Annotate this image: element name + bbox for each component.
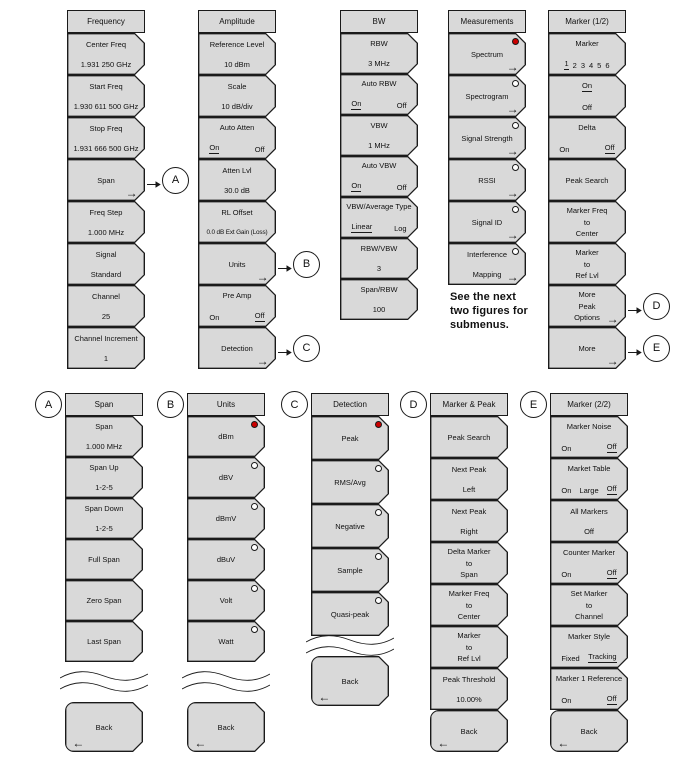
button-face: Spectrum→	[449, 34, 524, 73]
button-face: Last Span	[66, 622, 141, 660]
detection-button-negative[interactable]: Negative	[311, 504, 389, 548]
button-label-row: 1-2-5	[66, 483, 141, 492]
button-label-row: Zero Span	[66, 596, 141, 605]
label-segment: 3	[581, 61, 585, 70]
label-segment: Scale	[228, 82, 247, 91]
frequency-button-freq-step-1-000-mhz[interactable]: Freq Step1.000 MHz	[67, 201, 145, 243]
amplitude-button-detection[interactable]: Detection→	[198, 327, 276, 369]
button-label-row: to	[431, 643, 506, 652]
radio-unselected-icon	[251, 585, 258, 592]
button-label-row: Marker	[549, 39, 624, 48]
label-segment: Ref Lvl	[457, 654, 480, 663]
marker_peak-button-peak-threshold-10-00[interactable]: Peak Threshold10.00%	[430, 668, 508, 710]
bw-button-auto-vbw-on-off[interactable]: Auto VBWOnOff	[340, 156, 418, 197]
label-segment: Back	[96, 723, 113, 732]
button-label-row: Off	[551, 527, 626, 536]
label-segment: Atten Lvl	[222, 166, 251, 175]
submenu-note-line: See the next	[450, 290, 528, 304]
bw-button-rbw-3-mhz[interactable]: RBW3 MHz	[340, 33, 418, 74]
label-segment: Marker	[575, 248, 598, 257]
button-face: VBW/Average TypeLinearLog	[341, 198, 416, 236]
marker2-button-counter-marker-on-off[interactable]: Counter MarkerOnOff	[550, 542, 628, 584]
button-face: Full Span	[66, 540, 141, 578]
button-face: Scale10 dB/div	[199, 76, 274, 115]
back-arrow-icon: ←	[557, 737, 569, 749]
button-label-row: Freq Step	[68, 208, 143, 217]
connector-arrow-B	[278, 260, 292, 278]
label-circle-B: B	[157, 391, 184, 418]
frequency-menu: FrequencyCenter Freq1.931 250 GHzStart F…	[67, 10, 145, 369]
button-label-rows: Detection	[199, 344, 274, 353]
button-face: Signal Strength→	[449, 118, 524, 157]
button-label-row: dBm	[188, 432, 263, 441]
span-button-last-span[interactable]: Last Span	[65, 621, 143, 662]
button-face: Delta MarkertoSpan	[431, 543, 506, 582]
button-label-row: Back	[66, 723, 141, 732]
button-label-row: Signal	[68, 250, 143, 259]
label-segment: Units	[228, 260, 245, 269]
label-segment: Signal ID	[472, 218, 502, 227]
measurements-menu: MeasurementsSpectrum→Spectrogram→Signal …	[448, 10, 526, 285]
button-label-rows: SignalStandard	[68, 250, 143, 279]
button-label-rows: dBmV	[188, 514, 263, 523]
radio-unselected-icon	[512, 206, 519, 213]
bw-button-vbw-1-mhz[interactable]: VBW1 MHz	[340, 115, 418, 156]
span-button-span-down-1-2-5[interactable]: Span Down1-2-5	[65, 498, 143, 539]
label-segment: 30.0 dB	[224, 186, 250, 195]
button-label-rows: OnOff	[549, 81, 624, 112]
connector-circle-E: E	[643, 335, 670, 362]
button-label-row: Channel Increment	[68, 334, 143, 343]
label-segment: 2	[573, 61, 577, 70]
button-label-row: 1 MHz	[341, 141, 416, 150]
label-segment: Span Up	[89, 463, 118, 472]
submenu-arrow-icon: →	[257, 271, 269, 283]
button-face: Channel Increment1	[68, 328, 143, 367]
button-label-row: RBW/VBW	[341, 244, 416, 253]
button-label-rows: More	[549, 344, 624, 353]
label-segment: Ref Lvl	[575, 271, 598, 280]
amplitude-button-rl-offset-0-0-db-ext-gain-loss[interactable]: RL Offset0.0 dB Ext Gain (Loss)	[198, 201, 276, 243]
label-segment: 25	[102, 312, 110, 321]
softkey-menu-map: FrequencyCenter Freq1.931 250 GHzStart F…	[0, 0, 689, 767]
label-segment: 1	[564, 59, 568, 70]
units-button-dbv[interactable]: dBV	[187, 457, 265, 498]
button-face: Back←	[431, 711, 506, 750]
label-segment: Options	[574, 313, 600, 322]
frequency-button-channel-25[interactable]: Channel25	[67, 285, 145, 327]
button-label-row: Channel	[551, 612, 626, 621]
label-segment: Marker Style	[568, 632, 610, 641]
button-face: More→	[549, 328, 624, 367]
button-label-row: OnOff	[551, 568, 626, 579]
label-circle-C: C	[281, 391, 308, 418]
button-label-rows: Next PeakLeft	[431, 465, 506, 494]
span-button-span-1-000-mhz[interactable]: Span1.000 MHz	[65, 416, 143, 457]
bw-button-rbw-vbw-3[interactable]: RBW/VBW3	[340, 238, 418, 279]
amplitude-button-pre-amp-on-off[interactable]: Pre AmpOnOff	[198, 285, 276, 327]
button-label-row: Last Span	[66, 637, 141, 646]
back-arrow-icon: ←	[194, 737, 206, 749]
detection-button-back[interactable]: Back←	[311, 656, 389, 706]
button-label-rows: Peak Threshold10.00%	[431, 675, 506, 704]
label-circle-E: E	[520, 391, 547, 418]
button-face: Stop Freq1.931 666 500 GHz	[68, 118, 143, 157]
button-label-row: Negative	[312, 522, 387, 531]
label-segment: Market Table	[568, 464, 611, 473]
label-segment: 100	[373, 305, 386, 314]
amplitude-menu: AmplitudeReference Level10 dBmScale10 dB…	[198, 10, 276, 369]
detection-button-sample[interactable]: Sample	[311, 548, 389, 592]
detection-menu: DetectionPeakRMS/AvgNegativeSampleQuasi-…	[311, 393, 389, 706]
label-segment: Start Freq	[89, 82, 122, 91]
label-segment: VBW	[370, 121, 387, 130]
amplitude-button-scale-10-db-div[interactable]: Scale10 dB/div	[198, 75, 276, 117]
button-label-rows: Next PeakRight	[431, 507, 506, 536]
button-label-rows: VBW/Average TypeLinearLog	[341, 202, 416, 233]
button-label-rows: Peak	[312, 434, 387, 443]
label-segment: 1	[104, 354, 108, 363]
frequency-button-span[interactable]: Span→	[67, 159, 145, 201]
marker1-button-delta-on-off[interactable]: DeltaOnOff	[548, 117, 626, 159]
button-label-row: Marker Freq	[431, 589, 506, 598]
submenu-arrow-icon: →	[607, 355, 619, 367]
label-segment: Back	[342, 677, 359, 686]
button-label-row: 1.931 666 500 GHz	[68, 144, 143, 153]
span-button-zero-span[interactable]: Zero Span	[65, 580, 143, 621]
label-segment: All Markers	[570, 507, 608, 516]
marker_peak-button-marker-freq-to-center[interactable]: Marker FreqtoCenter	[430, 584, 508, 626]
button-label-rows: Marker 1 ReferenceOnOff	[551, 674, 626, 705]
label-segment: Quasi-peak	[331, 610, 369, 619]
button-label-row: Span	[431, 570, 506, 579]
button-label-rows: DeltaOnOff	[549, 123, 624, 154]
label-segment: Standard	[91, 270, 121, 279]
amplitude-button-reference-level-10-dbm[interactable]: Reference Level10 dBm	[198, 33, 276, 75]
frequency-button-center-freq-1-931-250-ghz[interactable]: Center Freq1.931 250 GHz	[67, 33, 145, 75]
radio-unselected-icon	[375, 597, 382, 604]
marker2-menu-title: Marker (2/2)	[550, 393, 628, 416]
label-segment: Back	[581, 727, 598, 736]
marker1-button-marker-1-2-3-4-5-6[interactable]: Marker123456	[548, 33, 626, 75]
button-label-row: Back	[312, 677, 387, 686]
bw-button-auto-rbw-on-off[interactable]: Auto RBWOnOff	[340, 74, 418, 115]
button-label-row: Watt	[188, 637, 263, 646]
button-label-rows: Scale10 dB/div	[199, 82, 274, 111]
bw-button-span-rbw-100[interactable]: Span/RBW100	[340, 279, 418, 320]
back-arrow-icon: ←	[72, 737, 84, 749]
button-label-rows: dBuV	[188, 555, 263, 564]
label-segment: Right	[460, 527, 478, 536]
marker_peak-button-next-peak-left[interactable]: Next PeakLeft	[430, 458, 508, 500]
amplitude-button-atten-lvl-30-0-db[interactable]: Atten Lvl30.0 dB	[198, 159, 276, 201]
marker1-button-marker-to-ref-lvl[interactable]: MarkertoRef Lvl	[548, 243, 626, 285]
button-face: Center Freq1.931 250 GHz	[68, 34, 143, 73]
connector-arrow-D	[628, 302, 642, 320]
button-label-row: Spectrogram	[449, 92, 524, 101]
marker_peak-button-next-peak-right[interactable]: Next PeakRight	[430, 500, 508, 542]
units-button-volt[interactable]: Volt	[187, 580, 265, 621]
back-arrow-icon: ←	[318, 691, 330, 703]
button-label-row: 1.000 MHz	[66, 442, 141, 451]
button-face: dBV	[188, 458, 263, 496]
marker2-button-back[interactable]: Back←	[550, 710, 628, 752]
frequency-button-stop-freq-1-931-666-500-ghz[interactable]: Stop Freq1.931 666 500 GHz	[67, 117, 145, 159]
marker1-button-more-peak-options[interactable]: MorePeakOptions→	[548, 285, 626, 327]
button-label-rows: Zero Span	[66, 596, 141, 605]
button-label-row: Auto RBW	[341, 79, 416, 88]
amplitude-menu-title: Amplitude	[198, 10, 276, 33]
button-label-row: dBmV	[188, 514, 263, 523]
button-face: Counter MarkerOnOff	[551, 543, 626, 582]
label-segment: Zero Span	[86, 596, 121, 605]
span-button-span-up-1-2-5[interactable]: Span Up1-2-5	[65, 457, 143, 498]
button-face: Span→	[68, 160, 143, 199]
label-segment: Reference Level	[210, 40, 265, 49]
button-face: Span Down1-2-5	[66, 499, 141, 537]
frequency-button-channel-increment-1[interactable]: Channel Increment1	[67, 327, 145, 369]
measurements-button-spectrogram[interactable]: Spectrogram→	[448, 75, 526, 117]
label-segment: to	[584, 260, 590, 269]
button-face: Span/RBW100	[341, 280, 416, 318]
marker2-button-set-marker-to-channel[interactable]: Set MarkertoChannel	[550, 584, 628, 626]
label-segment: Spectrum	[471, 50, 503, 59]
submenu-arrow-icon: →	[507, 187, 519, 199]
button-face: Watt	[188, 622, 263, 660]
button-label-row: Pre Amp	[199, 291, 274, 300]
label-segment: Span	[97, 176, 115, 185]
label-segment: 1.930 611 500 GHz	[74, 102, 139, 111]
button-label-rows: MarkertoRef Lvl	[549, 248, 624, 280]
measurements-button-rssi[interactable]: RSSI→	[448, 159, 526, 201]
label-segment: On	[351, 181, 361, 192]
button-label-rows: Auto AttenOnOff	[199, 123, 274, 154]
label-segment: 1 MHz	[368, 141, 390, 150]
button-face: Back←	[66, 703, 141, 750]
units-button-dbuv[interactable]: dBuV	[187, 539, 265, 580]
button-label-rows: Span Up1-2-5	[66, 463, 141, 492]
button-label-rows: Spectrogram	[449, 92, 524, 101]
label-segment: RBW	[370, 39, 388, 48]
label-segment: RBW/VBW	[361, 244, 398, 253]
button-face: MorePeakOptions→	[549, 286, 624, 325]
frequency-button-signal-standard[interactable]: SignalStandard	[67, 243, 145, 285]
submenu-arrow-icon: →	[607, 313, 619, 325]
button-face: Marker StyleFixedTracking	[551, 627, 626, 666]
units-button-back[interactable]: Back←	[187, 702, 265, 752]
connector-circle-B: B	[293, 251, 320, 278]
bw-menu: BWRBW3 MHzAuto RBWOnOffVBW1 MHzAuto VBWO…	[340, 10, 418, 320]
button-label-row: 10 dB/div	[199, 102, 274, 111]
label-segment: Full Span	[88, 555, 120, 564]
label-segment: Sample	[337, 566, 362, 575]
units-button-dbm[interactable]: dBm	[187, 416, 265, 457]
measurements-button-signal-id[interactable]: Signal ID→	[448, 201, 526, 243]
button-label-row: Back	[431, 727, 506, 736]
label-segment: 1.931 666 500 GHz	[73, 144, 138, 153]
button-face: Sample	[312, 549, 387, 590]
button-label-row: VBW/Average Type	[341, 202, 416, 211]
label-segment: Back	[218, 723, 235, 732]
button-label-row: 123456	[549, 59, 624, 70]
button-label-row: RL Offset	[199, 208, 274, 217]
button-face: SignalStandard	[68, 244, 143, 283]
detection-button-rms-avg[interactable]: RMS/Avg	[311, 460, 389, 504]
button-face: Atten Lvl30.0 dB	[199, 160, 274, 199]
marker2-button-marker-1-reference-on-off[interactable]: Marker 1 ReferenceOnOff	[550, 668, 628, 710]
label-segment: 1.000 MHz	[86, 442, 122, 451]
button-label-row: Auto Atten	[199, 123, 274, 132]
button-label-row: Center	[431, 612, 506, 621]
span-menu-title: Span	[65, 393, 143, 416]
button-label-row: Next Peak	[431, 465, 506, 474]
button-label-row: Peak Threshold	[431, 675, 506, 684]
label-segment: to	[466, 559, 472, 568]
marker1-button-peak-search[interactable]: Peak Search	[548, 159, 626, 201]
button-label-row: More	[549, 344, 624, 353]
button-label-row: Scale	[199, 82, 274, 91]
label-segment: Marker Freq	[449, 589, 490, 598]
button-label-rows: Marker NoiseOnOff	[551, 422, 626, 453]
marker_peak-button-peak-search[interactable]: Peak Search	[430, 416, 508, 458]
marker1-menu-title: Marker (1/2)	[548, 10, 626, 33]
label-segment: On	[561, 696, 571, 705]
marker1-menu: Marker (1/2)Marker123456OnOffDeltaOnOffP…	[548, 10, 626, 369]
button-label-row: 30.0 dB	[199, 186, 274, 195]
button-label-rows: Quasi-peak	[312, 610, 387, 619]
button-label-row: VBW	[341, 121, 416, 130]
button-label-row: to	[549, 218, 624, 227]
measurements-button-signal-strength[interactable]: Signal Strength→	[448, 117, 526, 159]
marker_peak-button-back[interactable]: Back←	[430, 710, 508, 752]
label-segment: Spectrogram	[466, 92, 509, 101]
label-segment: Pre Amp	[223, 291, 252, 300]
label-segment: Signal Strength	[461, 134, 512, 143]
button-face: Next PeakRight	[431, 501, 506, 540]
label-segment: On	[559, 145, 569, 154]
amplitude-button-auto-atten-on-off[interactable]: Auto AttenOnOff	[198, 117, 276, 159]
label-segment: Fixed	[561, 654, 579, 663]
submenu-arrow-icon: →	[507, 271, 519, 283]
label-segment: 1-2-5	[95, 524, 113, 533]
button-label-row: Atten Lvl	[199, 166, 274, 175]
button-label-rows: Counter MarkerOnOff	[551, 548, 626, 579]
label-segment: Left	[463, 485, 476, 494]
button-label-rows: Center Freq1.931 250 GHz	[68, 40, 143, 69]
label-segment: Marker	[575, 39, 598, 48]
button-label-row: Marker Freq	[549, 206, 624, 215]
button-label-row: LinearLog	[341, 222, 416, 233]
marker_peak-button-delta-marker-to-span[interactable]: Delta MarkertoSpan	[430, 542, 508, 584]
button-label-row: Reference Level	[199, 40, 274, 49]
label-segment: 1.000 MHz	[88, 228, 124, 237]
span-button-back[interactable]: Back←	[65, 702, 143, 752]
marker1-button-marker-freq-to-center[interactable]: Marker FreqtoCenter	[548, 201, 626, 243]
label-segment: Large	[579, 486, 598, 495]
menu-break-wave	[182, 668, 270, 701]
marker2-button-all-markers-off[interactable]: All MarkersOff	[550, 500, 628, 542]
label-circle-D: D	[400, 391, 427, 418]
label-segment: Negative	[335, 522, 365, 531]
button-label-row: Spectrum	[449, 50, 524, 59]
submenu-arrow-icon: →	[507, 103, 519, 115]
units-button-watt[interactable]: Watt	[187, 621, 265, 662]
button-label-rows: Peak Search	[549, 176, 624, 185]
marker2-button-marker-noise-on-off[interactable]: Marker NoiseOnOff	[550, 416, 628, 458]
marker2-button-marker-style-fixed-tracking[interactable]: Marker StyleFixedTracking	[550, 626, 628, 668]
frequency-button-start-freq-1-930-611-500-ghz[interactable]: Start Freq1.930 611 500 GHz	[67, 75, 145, 117]
marker2-button-market-table-on-large-off[interactable]: Market TableOnLargeOff	[550, 458, 628, 500]
units-button-dbmv[interactable]: dBmV	[187, 498, 265, 539]
button-label-rows: Watt	[188, 637, 263, 646]
button-label-row: All Markers	[551, 507, 626, 516]
label-segment: Off	[607, 442, 617, 453]
marker1-button-more[interactable]: More→	[548, 327, 626, 369]
detection-button-peak[interactable]: Peak	[311, 416, 389, 460]
button-label-rows: Back	[66, 723, 141, 732]
span-button-full-span[interactable]: Full Span	[65, 539, 143, 580]
label-segment: Back	[461, 727, 478, 736]
button-label-row: 3	[341, 264, 416, 273]
button-label-row: OnOff	[199, 311, 274, 322]
button-label-row: Signal Strength	[449, 134, 524, 143]
button-label-rows: Marker FreqtoCenter	[431, 589, 506, 621]
button-label-row: Span	[68, 176, 143, 185]
button-label-row: Center	[549, 229, 624, 238]
submenu-note-line: two figures for	[450, 304, 528, 318]
connector-arrow-A	[147, 176, 161, 194]
button-face: dBmV	[188, 499, 263, 537]
connector-arrow-C	[278, 344, 292, 362]
detection-button-quasi-peak[interactable]: Quasi-peak	[311, 592, 389, 636]
submenu-arrow-icon: →	[257, 355, 269, 367]
button-label-rows: dBV	[188, 473, 263, 482]
label-segment: dBmV	[216, 514, 236, 523]
measurements-menu-title: Measurements	[448, 10, 526, 33]
button-face: RSSI→	[449, 160, 524, 199]
units-menu: UnitsdBmdBVdBmVdBuVVoltWattBack←	[187, 393, 265, 752]
label-segment: Tracking	[588, 652, 616, 663]
marker_peak-button-marker-to-ref-lvl[interactable]: MarkertoRef Lvl	[430, 626, 508, 668]
button-face: RMS/Avg	[312, 461, 387, 502]
label-segment: RL Offset	[221, 208, 252, 217]
label-segment: Span Down	[85, 504, 124, 513]
radio-unselected-icon	[512, 248, 519, 255]
button-label-row: RMS/Avg	[312, 478, 387, 487]
label-segment: Auto Atten	[220, 123, 255, 132]
label-segment: dBV	[219, 473, 233, 482]
measurements-button-spectrum[interactable]: Spectrum→	[448, 33, 526, 75]
amplitude-button-units[interactable]: Units→	[198, 243, 276, 285]
button-label-row: Marker	[549, 248, 624, 257]
button-label-row: dBuV	[188, 555, 263, 564]
label-segment: to	[466, 601, 472, 610]
button-label-row: Sample	[312, 566, 387, 575]
label-segment: Delta	[578, 123, 596, 132]
button-label-row: Center Freq	[68, 40, 143, 49]
button-label-row: 3 MHz	[341, 59, 416, 68]
button-label-row: Back	[551, 727, 626, 736]
bw-button-vbw-average-type-linear-log[interactable]: VBW/Average TypeLinearLog	[340, 197, 418, 238]
marker1-button-on-off[interactable]: OnOff	[548, 75, 626, 117]
button-face: Channel25	[68, 286, 143, 325]
measurements-button-interference-mapping[interactable]: InterferenceMapping→	[448, 243, 526, 285]
label-segment: Auto RBW	[361, 79, 396, 88]
button-face: RBW/VBW3	[341, 239, 416, 277]
label-segment: Span	[460, 570, 478, 579]
button-label-row: Span Up	[66, 463, 141, 472]
button-label-row: Signal ID	[449, 218, 524, 227]
